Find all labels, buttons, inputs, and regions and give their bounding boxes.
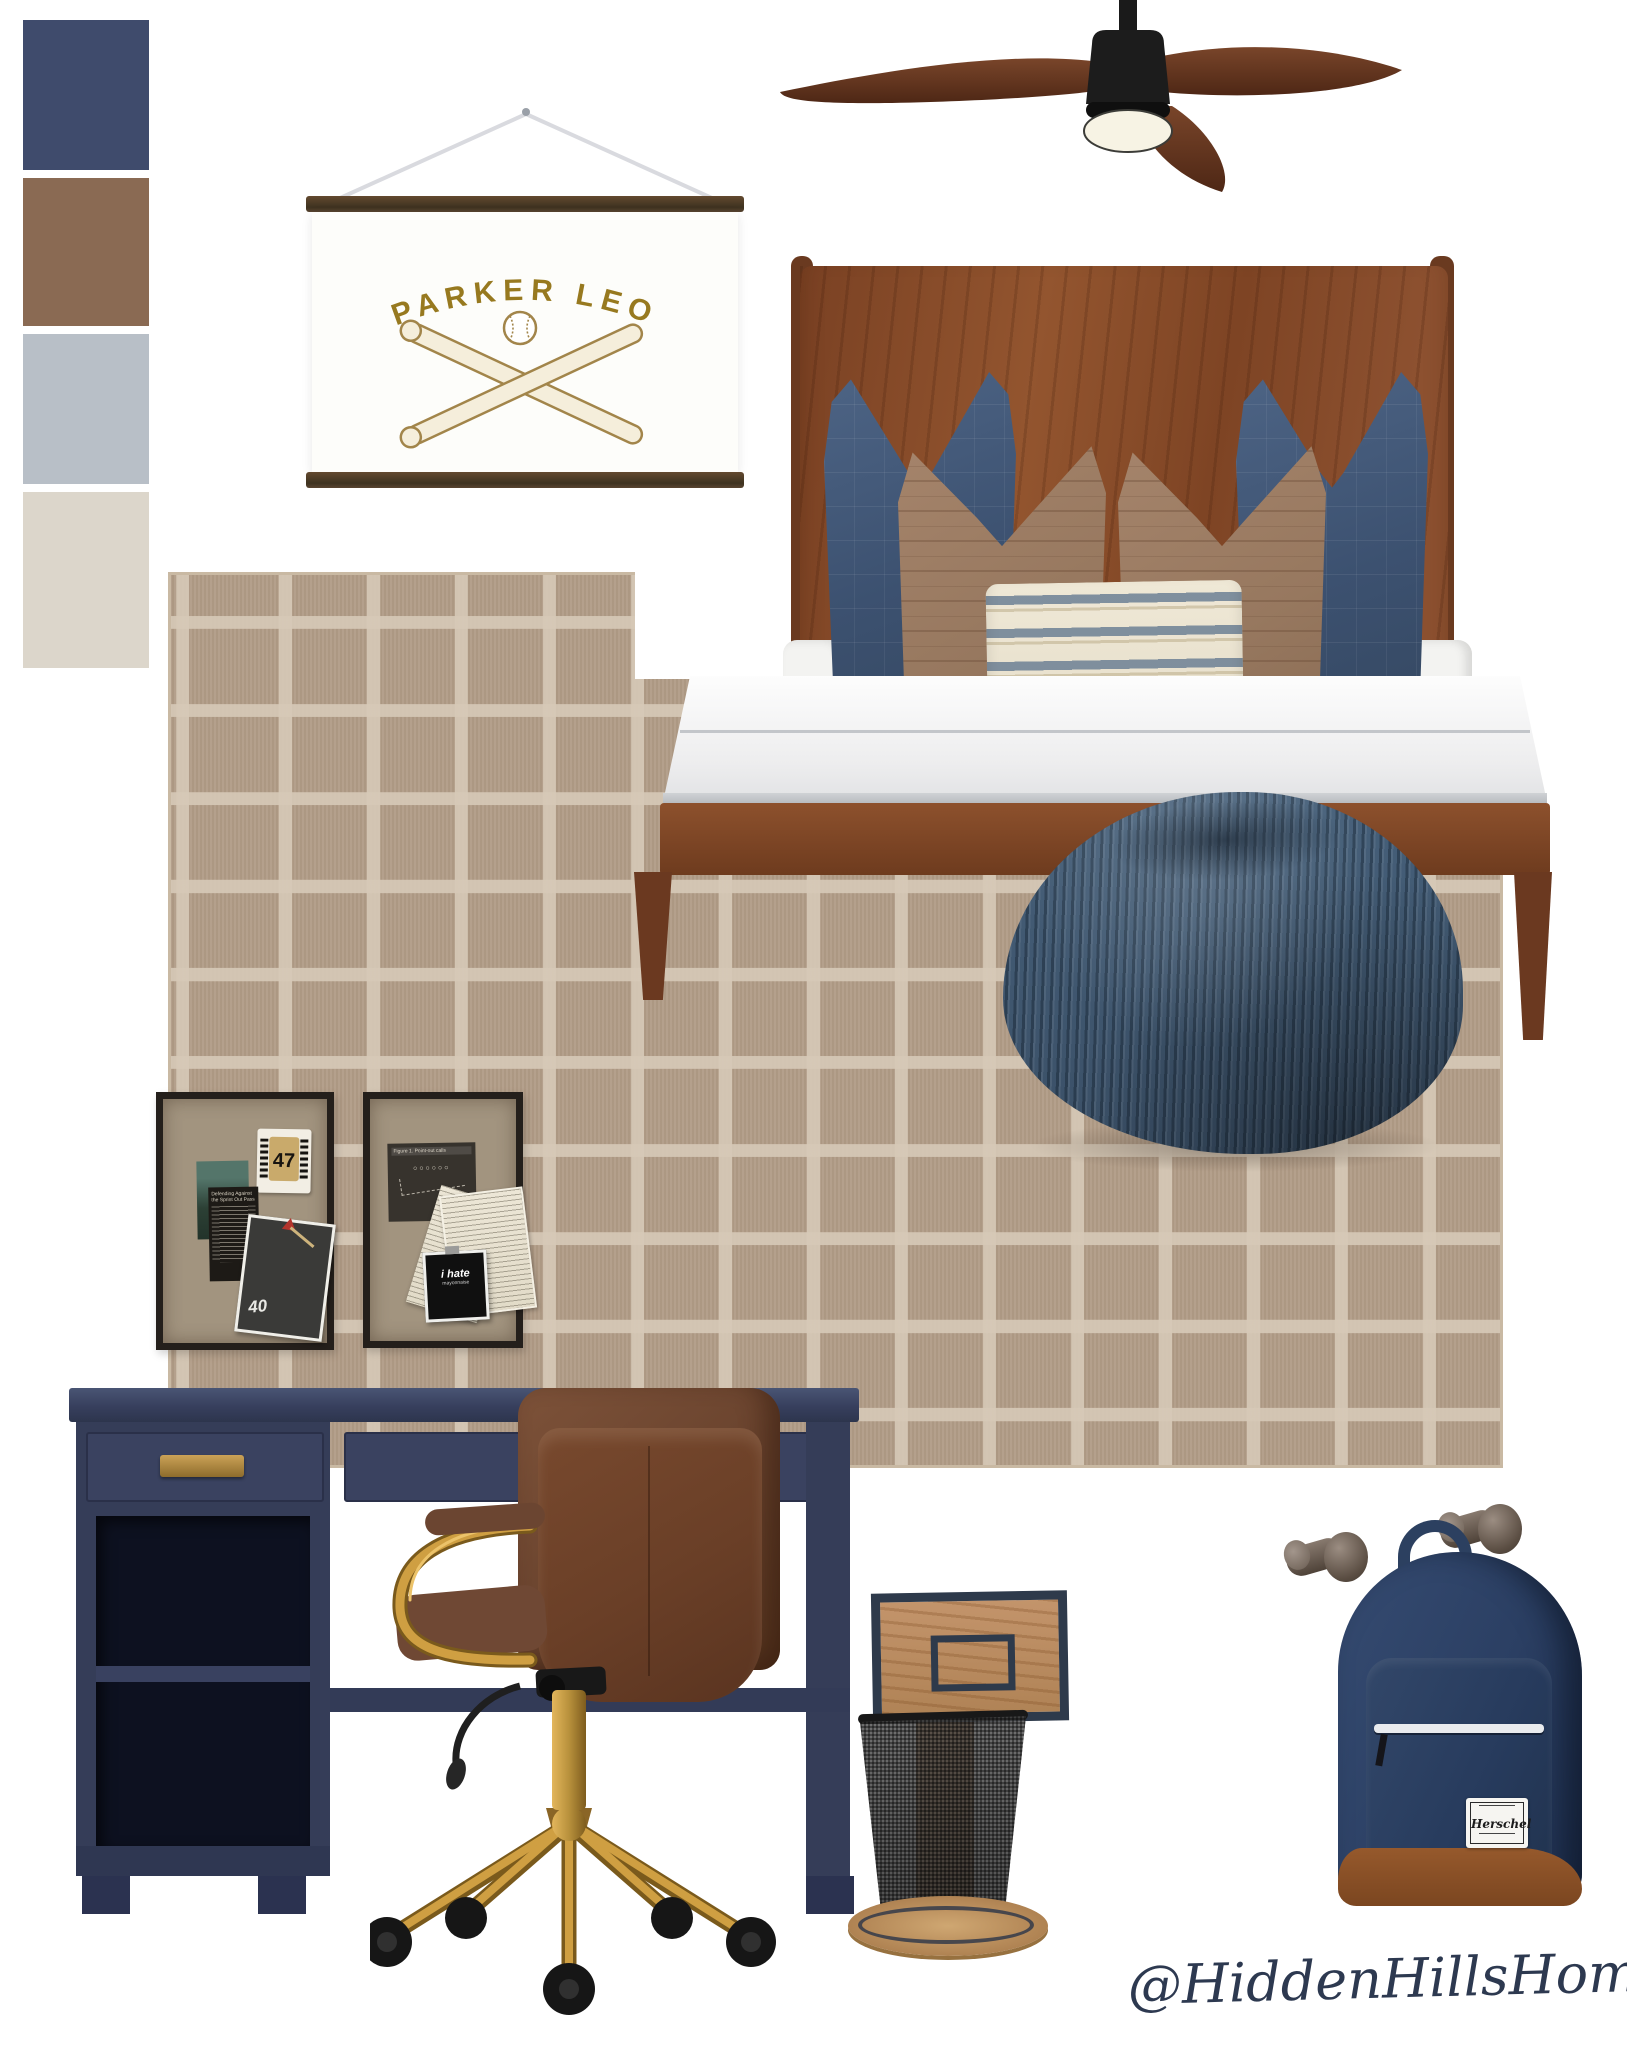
wall-hook-left — [1286, 1516, 1366, 1598]
banner-nail — [522, 108, 530, 116]
name-banner: PARKER LEO — [312, 212, 738, 472]
basketball-backboard — [871, 1590, 1069, 1723]
pinboard-right: Figure 1. Point-out calls ○○○○○○ i hate … — [363, 1092, 523, 1348]
banner-top-rail — [306, 196, 744, 212]
chair-tilt-lever — [456, 1686, 520, 1762]
jersey-number: 47 — [269, 1137, 300, 1182]
pinboard-left: 47 Defending Against the Sprint Out Pass… — [156, 1092, 334, 1350]
hook-backplate — [1478, 1504, 1522, 1554]
jersey-number-card: 47 — [256, 1129, 311, 1194]
banner-bottom-rail — [306, 472, 744, 488]
fan-downrod — [1119, 0, 1137, 34]
ceiling-fan — [770, 0, 1415, 205]
desk-drawer-pull — [160, 1455, 244, 1477]
backpack-leather-bottom — [1338, 1848, 1582, 1906]
hook-backplate — [1324, 1532, 1368, 1582]
yard-line-number: 40 — [247, 1296, 268, 1318]
baseball-icon — [504, 312, 536, 344]
desk-base-apron — [76, 1846, 330, 1876]
fan-light — [1084, 110, 1172, 152]
palette-swatch-brown — [23, 178, 149, 326]
banner-artwork: PARKER LEO — [312, 212, 738, 472]
label-border: Herschel — [1470, 1802, 1524, 1844]
watermark-handle: @HiddenHillsHome — [1127, 1942, 1609, 2045]
fan-blade-right — [1162, 47, 1402, 95]
label-rule — [1479, 1805, 1515, 1806]
desk-cubby-shelf — [96, 1666, 310, 1682]
mattress-shadow — [663, 793, 1547, 803]
figure-caption: Figure 1. Point-out calls — [391, 1146, 471, 1155]
fan-motor — [1086, 30, 1170, 104]
bed-mattress — [663, 676, 1547, 802]
palette-swatch-navy — [23, 20, 149, 170]
palette-swatch-gray — [23, 334, 149, 484]
mesh-wastebasket — [860, 1716, 1026, 1916]
desk-foot — [258, 1876, 306, 1914]
backpack-zipper — [1374, 1724, 1544, 1733]
backpack-brand-label: Herschel — [1466, 1798, 1528, 1848]
desk-foot — [82, 1876, 130, 1914]
label-rule — [1479, 1833, 1515, 1834]
card-stripe — [300, 1139, 309, 1179]
palette-swatch-cream — [23, 492, 149, 668]
card-stripe — [260, 1139, 269, 1179]
desk-foot — [806, 1876, 854, 1914]
moodboard-canvas: PARKER LEO — [0, 0, 1627, 2048]
base-ring — [858, 1906, 1034, 1944]
brand-name: Herschel — [1471, 1817, 1523, 1831]
mattress-piping — [680, 730, 1530, 733]
dart-shaft — [290, 1226, 315, 1248]
chair-frame — [370, 1490, 790, 2040]
hoop-wood-base — [848, 1896, 1048, 1956]
desk-right-leg — [806, 1422, 850, 1878]
polaroid-card: i hate mayonnaise — [422, 1249, 490, 1322]
backboard-inner-square — [931, 1634, 1016, 1691]
chair-star-base — [387, 1807, 751, 1987]
binder-clip — [445, 1246, 459, 1255]
fan-blade-left — [780, 58, 1102, 103]
article-title: Defending Against the Sprint Out Pass — [211, 1191, 255, 1204]
chair-gas-lift — [552, 1690, 586, 1810]
bed-leg-right — [1514, 872, 1552, 1040]
